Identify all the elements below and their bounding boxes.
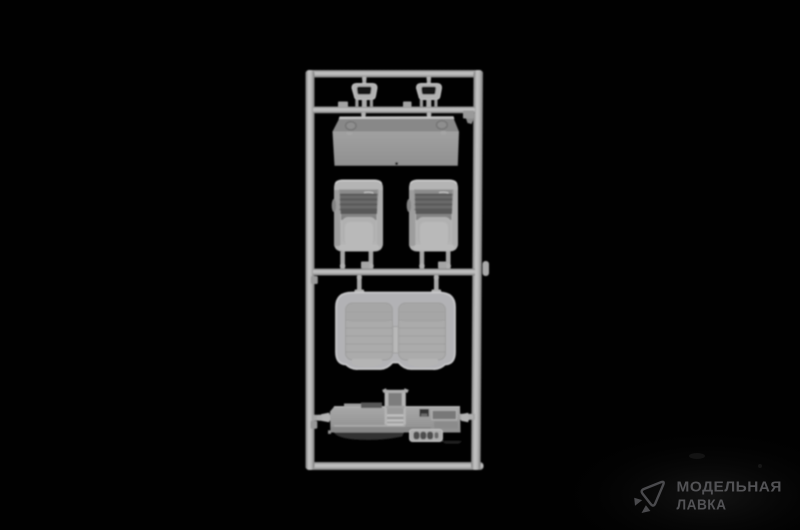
svg-text:ЛАВКА: ЛАВКА — [677, 496, 727, 513]
svg-text:МОДЕЛЬНАЯ: МОДЕЛЬНАЯ — [677, 479, 783, 496]
